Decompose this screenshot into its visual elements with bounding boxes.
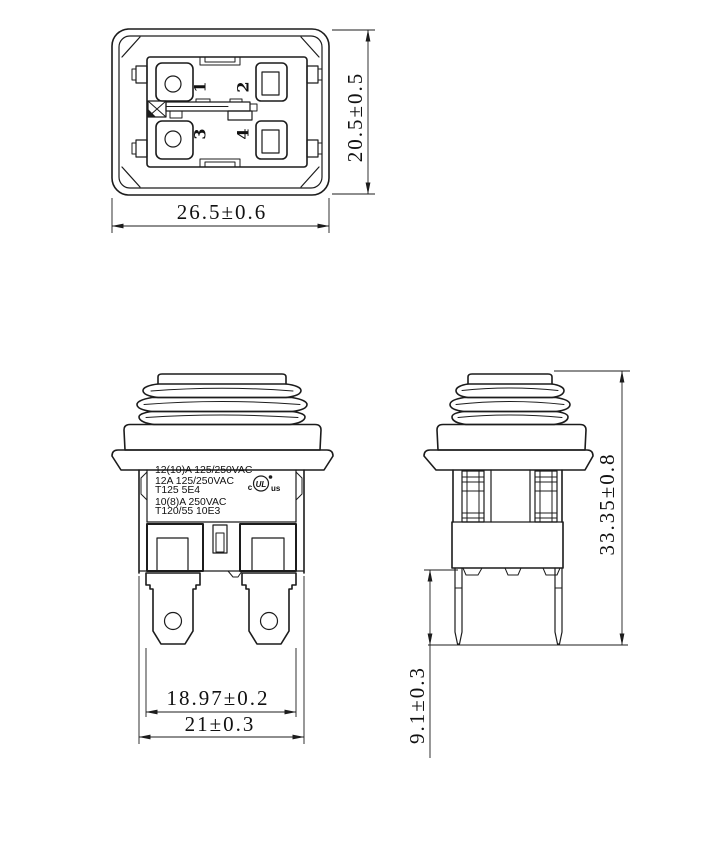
top-width-dim-label: 26.5±0.6 <box>177 200 268 224</box>
front-span-dim-label: 18.97±0.2 <box>166 686 269 710</box>
front-terminal-span-dimension: 18.97±0.2 <box>146 648 296 717</box>
cert-us-label: us <box>271 484 281 493</box>
slider-latch <box>148 99 257 120</box>
side-snap-column-left <box>462 471 484 522</box>
top-height-dimension: 20.5±0.5 <box>332 30 375 194</box>
side-pin-length-dimension: 9.1±0.3 <box>405 570 458 758</box>
terminal-block-2 <box>256 63 287 101</box>
side-pin-dim-label: 9.1±0.3 <box>405 666 429 744</box>
cert-c-label: c <box>248 483 253 492</box>
side-view: 33.35±0.8 9.1±0.3 <box>405 371 630 758</box>
top-view-shell <box>112 29 329 195</box>
marking-line-1: 12(10)A 125/250VAC <box>155 465 253 476</box>
ul-logo-label: UL <box>256 480 267 489</box>
front-body-width-dimension: 21±0.3 <box>139 576 304 744</box>
side-button-cap <box>450 374 570 425</box>
front-spade-terminals <box>146 573 296 644</box>
terminal-block-3 <box>156 121 193 159</box>
front-width-dim-label: 21±0.3 <box>185 712 256 736</box>
side-bezel-flange <box>424 425 593 471</box>
terminal-number-4: 4 <box>234 128 253 139</box>
side-pins <box>455 568 562 644</box>
front-button-cap <box>137 374 307 425</box>
drawing-sheet: 1 2 3 4 26.5±0.6 20.5±0.5 <box>0 0 707 852</box>
terminal-block-4 <box>256 121 287 159</box>
cul-us-certification-mark: c UL us <box>248 475 281 493</box>
side-body <box>452 470 563 575</box>
top-view: 1 2 3 4 26.5±0.6 20.5±0.5 <box>112 29 375 233</box>
registered-dot-icon <box>269 475 273 479</box>
terminal-number-2: 2 <box>234 81 253 92</box>
marking-line-3: T125 5E4 <box>155 485 200 496</box>
technical-drawing: 1 2 3 4 26.5±0.6 20.5±0.5 <box>0 0 707 852</box>
terminal-number-3: 3 <box>191 128 210 139</box>
top-width-dimension: 26.5±0.6 <box>112 198 329 233</box>
front-view: 12(10)A 125/250VAC 12A 125/250VAC T125 5… <box>112 374 333 744</box>
terminal-number-1: 1 <box>191 81 210 92</box>
top-height-dim-label: 20.5±0.5 <box>343 72 367 163</box>
front-bezel-flange <box>112 425 333 471</box>
marking-line-5: T120/55 10E3 <box>155 506 221 517</box>
side-height-dim-label: 33.35±0.8 <box>595 452 619 555</box>
front-markings: 12(10)A 125/250VAC 12A 125/250VAC T125 5… <box>155 465 281 517</box>
side-snap-column-right <box>535 471 557 522</box>
terminal-block-1 <box>156 63 193 101</box>
